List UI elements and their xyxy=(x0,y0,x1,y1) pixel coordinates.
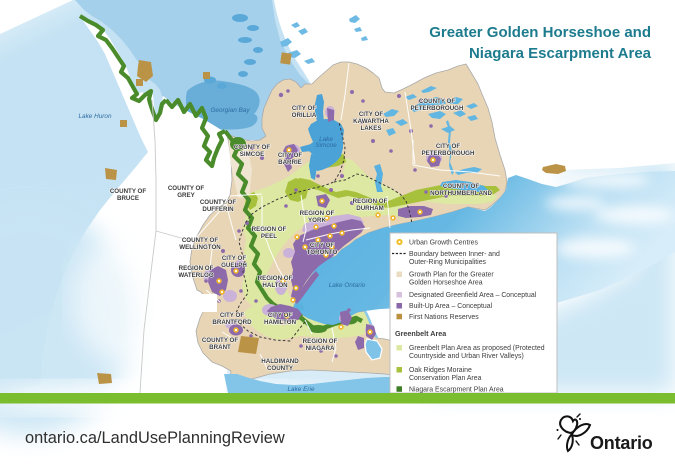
svg-text:HALDIMAND: HALDIMAND xyxy=(261,358,299,365)
svg-text:CITY OF: CITY OF xyxy=(268,312,293,319)
svg-text:Oak Ridges Moraine: Oak Ridges Moraine xyxy=(409,367,472,374)
svg-text:CITY OF: CITY OF xyxy=(436,143,461,150)
svg-text:REGION OF: REGION OF xyxy=(353,198,388,205)
svg-text:Lake Ontario: Lake Ontario xyxy=(329,282,366,289)
svg-text:Boundary between Inner- and: Boundary between Inner- and xyxy=(409,251,500,258)
svg-text:CITY OF: CITY OF xyxy=(222,255,247,262)
svg-text:Designated Greenfield Area – C: Designated Greenfield Area – Conceptual xyxy=(409,292,537,299)
svg-text:COUNTY OF: COUNTY OF xyxy=(182,237,219,244)
svg-text:PEEL: PEEL xyxy=(261,233,277,240)
svg-text:YORK: YORK xyxy=(308,217,326,224)
svg-text:WATERLOO: WATERLOO xyxy=(178,272,213,279)
svg-text:WELLINGTON: WELLINGTON xyxy=(179,244,221,251)
svg-text:Growth Plan for the Greater: Growth Plan for the Greater xyxy=(409,272,494,279)
svg-text:COUNTY OF: COUNTY OF xyxy=(200,199,237,206)
svg-text:SIMCOE: SIMCOE xyxy=(240,151,264,158)
svg-text:CITY OF: CITY OF xyxy=(310,242,335,249)
svg-text:CITY OF: CITY OF xyxy=(292,105,317,112)
svg-text:Ontario: Ontario xyxy=(590,433,653,453)
svg-text:REGION OF: REGION OF xyxy=(258,275,293,282)
svg-text:ORILLIA: ORILLIA xyxy=(292,112,317,119)
svg-text:COUNTY OF: COUNTY OF xyxy=(202,337,239,344)
svg-text:GREY: GREY xyxy=(177,192,195,199)
svg-text:Niagara Escarpment Plan Area: Niagara Escarpment Plan Area xyxy=(409,386,504,393)
svg-text:BRUCE: BRUCE xyxy=(117,195,139,202)
svg-text:COUNTY OF: COUNTY OF xyxy=(234,144,271,151)
svg-text:BRANT: BRANT xyxy=(209,344,231,351)
svg-text:HAMILTON: HAMILTON xyxy=(264,319,297,326)
svg-text:Lake Huron: Lake Huron xyxy=(78,113,111,120)
svg-text:Niagara Escarpment Area: Niagara Escarpment Area xyxy=(469,45,652,62)
svg-text:PETERBOROUGH: PETERBOROUGH xyxy=(411,105,464,112)
svg-text:Conservation Plan Area: Conservation Plan Area xyxy=(409,375,482,382)
svg-text:First Nations Reserves: First Nations Reserves xyxy=(409,314,479,321)
svg-text:Built-Up Area – Conceptual: Built-Up Area – Conceptual xyxy=(409,303,493,310)
svg-text:PETERBOROUGH: PETERBOROUGH xyxy=(422,150,475,157)
svg-text:HALTON: HALTON xyxy=(262,282,288,289)
svg-text:DUFFERIN: DUFFERIN xyxy=(202,206,234,213)
svg-text:ontario.ca/LandUsePlanningRevi: ontario.ca/LandUsePlanningReview xyxy=(25,429,285,447)
svg-text:GUELPH: GUELPH xyxy=(221,262,247,269)
svg-text:Countryside and Urban River Va: Countryside and Urban River Valleys) xyxy=(409,353,524,360)
svg-text:Simcoe: Simcoe xyxy=(315,142,337,149)
svg-text:REGION OF: REGION OF xyxy=(179,265,214,272)
svg-text:Greater Golden Horseshoe and: Greater Golden Horseshoe and xyxy=(429,24,651,41)
svg-text:Georgian Bay: Georgian Bay xyxy=(210,107,250,114)
svg-text:TORONTO: TORONTO xyxy=(307,249,338,256)
svg-text:COUNTY OF: COUNTY OF xyxy=(168,185,205,192)
svg-text:Urban Growth Centres: Urban Growth Centres xyxy=(409,240,478,247)
svg-text:Golden Horseshoe Area: Golden Horseshoe Area xyxy=(409,280,483,287)
svg-text:CITY OF: CITY OF xyxy=(278,152,303,159)
svg-text:Lake Erie: Lake Erie xyxy=(288,386,315,393)
svg-text:REGION OF: REGION OF xyxy=(252,226,287,233)
svg-text:REGION OF: REGION OF xyxy=(303,338,338,345)
svg-text:LAKES: LAKES xyxy=(361,125,382,132)
svg-text:DURHAM: DURHAM xyxy=(356,205,384,212)
svg-text:COUNTY OF: COUNTY OF xyxy=(443,183,480,190)
svg-text:CITY OF: CITY OF xyxy=(220,312,245,319)
svg-text:BARRIE: BARRIE xyxy=(278,159,302,166)
svg-text:KAWARTHA: KAWARTHA xyxy=(353,118,389,125)
svg-text:COUNTY OF: COUNTY OF xyxy=(110,188,147,195)
svg-text:COUNTY: COUNTY xyxy=(267,365,294,372)
svg-text:REGION OF: REGION OF xyxy=(300,210,335,217)
svg-text:Outer-Ring Municipalities: Outer-Ring Municipalities xyxy=(409,259,487,266)
svg-text:NORTHUMBERLAND: NORTHUMBERLAND xyxy=(430,190,492,197)
svg-text:Greenbelt Plan Area as propose: Greenbelt Plan Area as proposed (Protect… xyxy=(409,345,545,352)
svg-text:BRANTFORD: BRANTFORD xyxy=(212,319,252,326)
svg-text:CITY OF: CITY OF xyxy=(359,111,384,118)
svg-text:COUNTY OF: COUNTY OF xyxy=(419,98,456,105)
svg-text:Greenbelt Area: Greenbelt Area xyxy=(395,329,447,338)
svg-text:NIAGARA: NIAGARA xyxy=(306,345,335,352)
